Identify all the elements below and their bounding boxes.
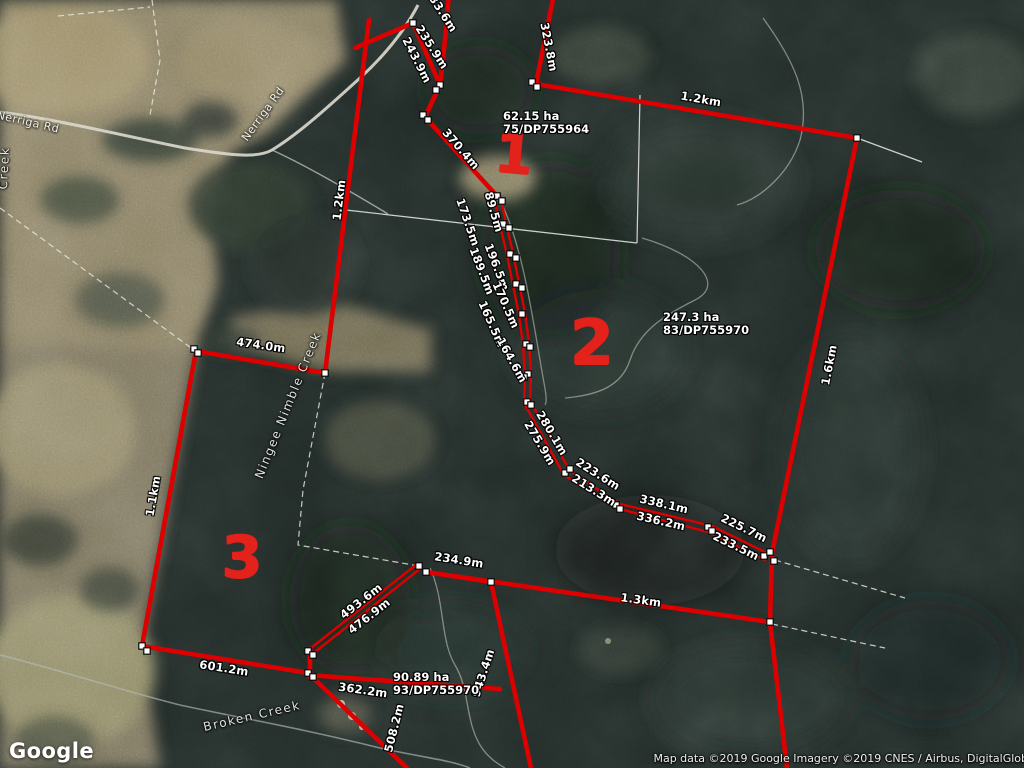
measurement-label: 1.3km xyxy=(620,590,663,610)
parcel-number: 3 xyxy=(222,531,262,583)
parcel-number: 1 xyxy=(493,129,535,181)
parcel-area: 90.89 ha xyxy=(393,671,479,684)
measurement-label: 1.6km xyxy=(818,344,840,387)
parcel-area: 247.3 ha xyxy=(663,311,749,324)
parcel-area-label: 90.89 ha93/DP755970 xyxy=(393,671,479,696)
measurement-label: 1.2km xyxy=(330,179,349,221)
creek-label: Broken Creek xyxy=(202,698,302,734)
parcel-area-label: 62.15 ha75/DP755964 xyxy=(503,110,589,135)
measurement-label: 164.6m xyxy=(494,335,530,385)
measurement-label: 1.1km xyxy=(143,475,164,518)
satellite-map[interactable]: 233.6m235.9m243.9m370.4m323.8m1.2km1.6km… xyxy=(0,0,1024,768)
parcel-lot: 75/DP755964 xyxy=(503,123,589,136)
parcel-number: 2 xyxy=(570,315,613,371)
measurement-label: 89.5m xyxy=(482,190,507,234)
measurement-label: 234.9m xyxy=(433,549,484,571)
map-attribution: Map data ©2019 Google Imagery ©2019 CNES… xyxy=(653,752,1024,765)
parcel-lot: 93/DP755970 xyxy=(393,684,479,697)
measurement-label: 1.2km xyxy=(680,89,723,110)
measurement-label: 370.4m xyxy=(439,126,482,173)
road-label: Nerriga Rd xyxy=(0,108,61,135)
road-label: Nerriga Rd xyxy=(239,84,287,143)
measurement-label: 601.2m xyxy=(198,657,249,679)
measurement-label: 474.0m xyxy=(235,335,286,356)
parcel-area: 62.15 ha xyxy=(503,110,589,123)
measurement-label: 173.5m xyxy=(453,196,482,247)
measurement-label: 362.2m xyxy=(337,680,388,701)
google-logo[interactable]: Google xyxy=(9,739,94,763)
measurement-label: 323.8m xyxy=(537,21,560,72)
parcel-lot: 83/DP755970 xyxy=(663,324,749,337)
creek-label: Creek xyxy=(0,146,12,189)
measurement-label: 508.2m xyxy=(381,702,407,753)
map-labels-layer: 233.6m235.9m243.9m370.4m323.8m1.2km1.6km… xyxy=(0,0,1024,768)
parcel-area-label: 247.3 ha83/DP755970 xyxy=(663,311,749,336)
